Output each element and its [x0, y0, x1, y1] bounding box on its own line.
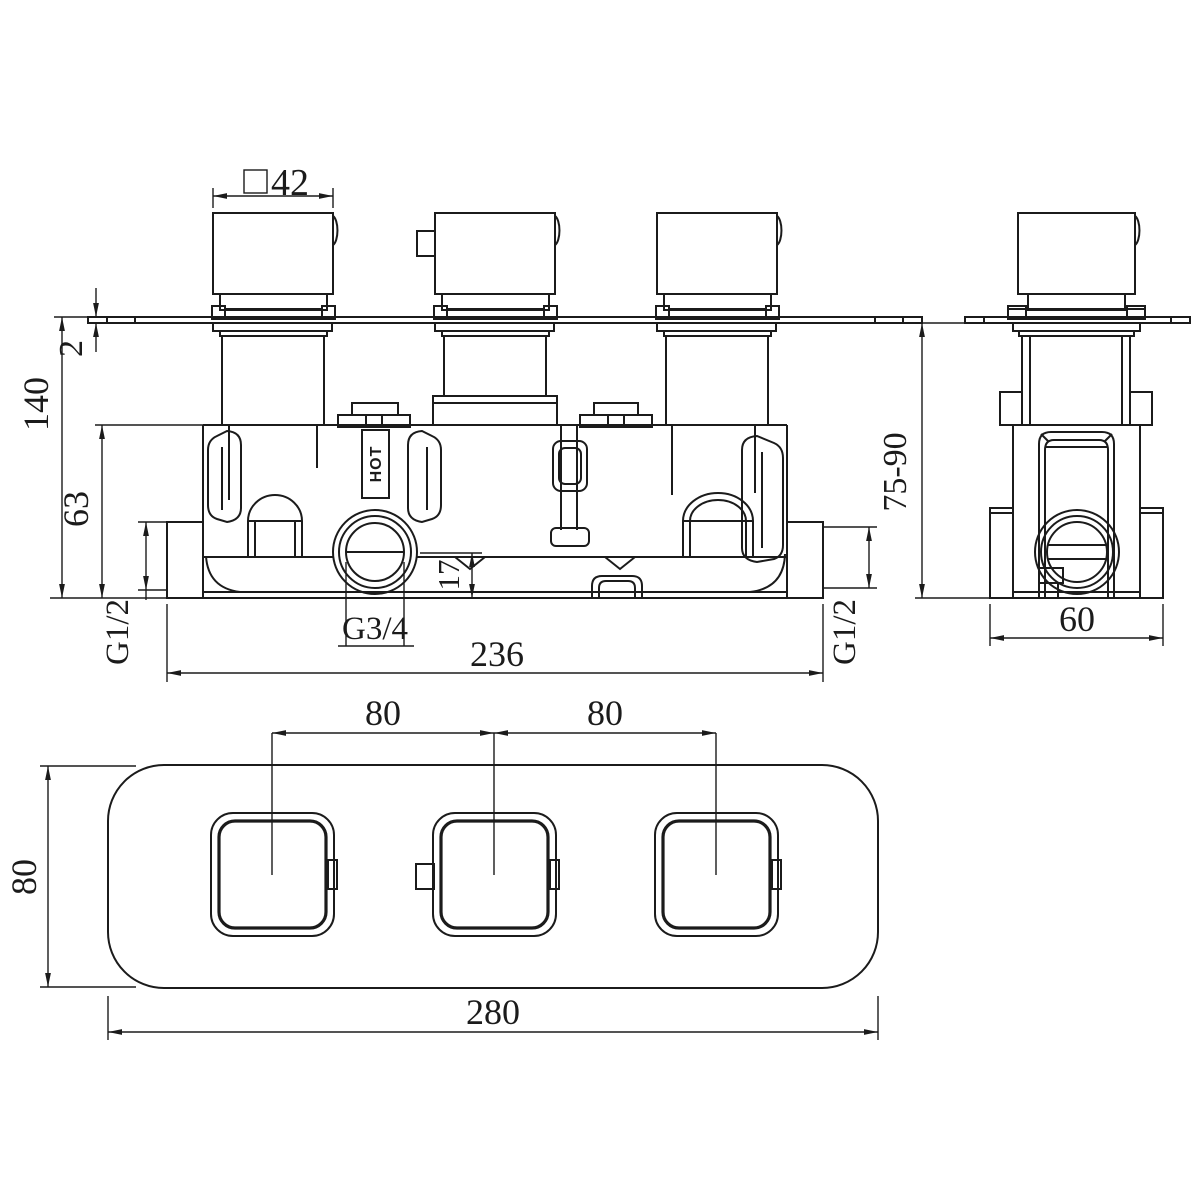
dim-42: 42 — [271, 162, 309, 204]
cartridge-left — [212, 213, 337, 425]
trim-plate — [108, 765, 878, 988]
handle-tab-middle — [416, 864, 434, 889]
technical-drawing: HOT 42 2 — [0, 0, 1200, 1200]
front-dimensions: 42 2 140 63 17 G3/4 — [16, 162, 877, 682]
handle-notch-left — [328, 860, 337, 889]
label-g12-left: G1/2 — [100, 599, 136, 665]
dim-2: 2 — [53, 340, 90, 357]
dim-80-height: 80 — [4, 859, 44, 895]
handle-notch-middle — [550, 860, 559, 889]
dim-17: 17 — [431, 560, 466, 591]
side-body — [965, 213, 1190, 598]
handle-notch-right — [772, 860, 781, 889]
front-view: HOT 42 2 — [16, 162, 922, 682]
cartridge-right — [656, 213, 781, 425]
dim-60: 60 — [1059, 599, 1095, 639]
inlet-port-left — [167, 522, 203, 598]
square-symbol — [244, 170, 267, 193]
dim-140: 140 — [16, 377, 56, 431]
dim-63: 63 — [56, 491, 96, 527]
dim-280: 280 — [466, 992, 520, 1032]
valve-body: HOT — [167, 403, 823, 598]
cartridge-middle — [417, 213, 559, 425]
label-g34: G3/4 — [342, 611, 408, 647]
inlet-port-right — [787, 522, 823, 598]
bottom-view: 80 80 80 280 — [4, 693, 878, 1040]
dim-80-left: 80 — [365, 693, 401, 733]
dim-75-90: 75-90 — [877, 432, 914, 511]
side-view: 75-90 60 — [877, 213, 1190, 646]
label-g12-right: G1/2 — [827, 599, 863, 665]
dim-236: 236 — [470, 634, 524, 674]
dim-80-right: 80 — [587, 693, 623, 733]
hot-label: HOT — [368, 446, 385, 483]
